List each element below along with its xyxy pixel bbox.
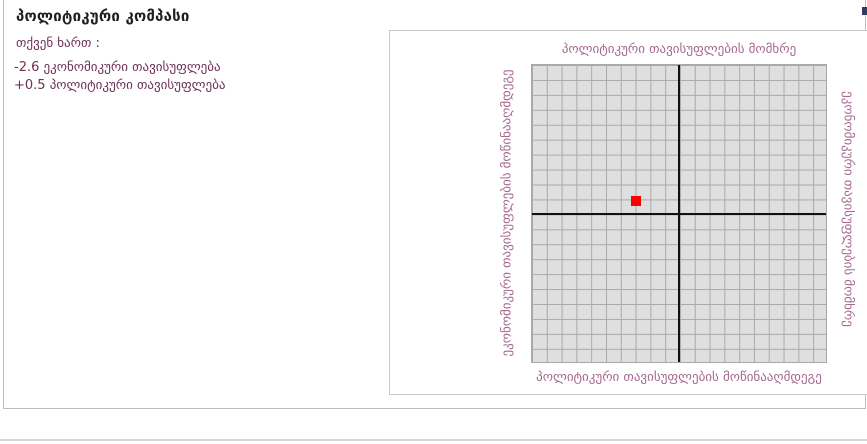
result-point-marker bbox=[631, 196, 641, 206]
page-title: პოლიტიკური კომპასი bbox=[16, 7, 190, 25]
content-container: პოლიტიკური კომპასი თქვენ ხართ : -2.6 ეკო… bbox=[3, 0, 866, 409]
page: პოლიტიკური კომპასი თქვენ ხართ : -2.6 ეკო… bbox=[0, 0, 867, 444]
bottom-divider bbox=[0, 439, 867, 441]
scrollbar-thumb[interactable] bbox=[862, 7, 867, 15]
compass-chart-panel: პოლიტიკური თავისუფლების მომხრე პოლიტიკურ… bbox=[389, 30, 867, 395]
score-line-economic: -2.6 ეკონომიკური თავისუფლება bbox=[14, 59, 225, 77]
chart-top-label: პოლიტიკური თავისუფლების მომხრე bbox=[531, 42, 827, 57]
score-list: -2.6 ეკონომიკური თავისუფლება +0.5 პოლიტი… bbox=[14, 59, 225, 95]
intro-text: თქვენ ხართ : bbox=[16, 36, 100, 51]
score-line-political: +0.5 პოლიტიკური თავისუფლება bbox=[14, 77, 225, 95]
compass-grid bbox=[531, 64, 827, 363]
chart-right-label: ეკონომიკური თავისუფლების მომხრე bbox=[841, 91, 856, 327]
chart-bottom-label: პოლიტიკური თავისუფლების მოწინააღმდეგე bbox=[491, 370, 867, 385]
x-axis-line bbox=[532, 213, 826, 215]
chart-left-label: ეკონომიკური თავისუფლების მოწინააღმდეგე bbox=[500, 69, 515, 356]
